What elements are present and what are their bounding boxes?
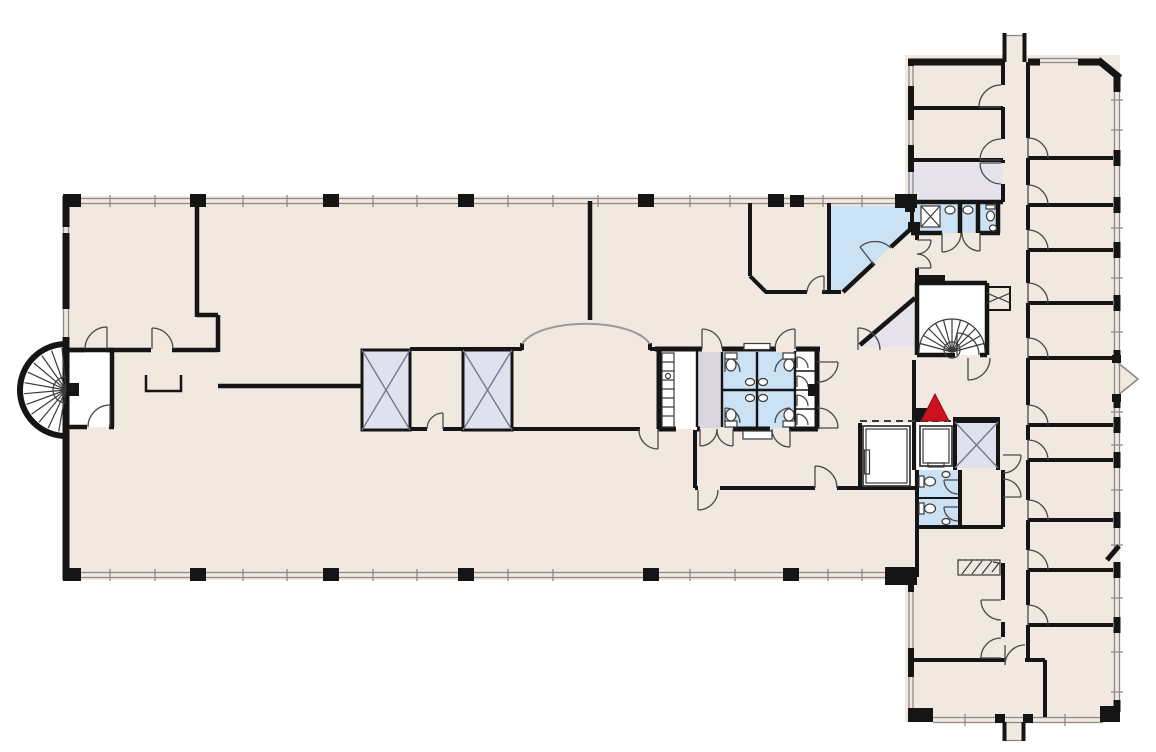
landing-room-north bbox=[908, 163, 1003, 202]
floor-plan-canvas bbox=[0, 0, 1156, 752]
elevator-small-icon bbox=[920, 426, 952, 467]
east-wing-floor bbox=[905, 55, 1120, 722]
elevator-large-icon bbox=[863, 426, 910, 486]
bench-north bbox=[744, 344, 770, 350]
floor-plan-page bbox=[0, 0, 1156, 752]
bench-south bbox=[743, 431, 772, 439]
restroom-central-vestibule bbox=[698, 352, 722, 428]
